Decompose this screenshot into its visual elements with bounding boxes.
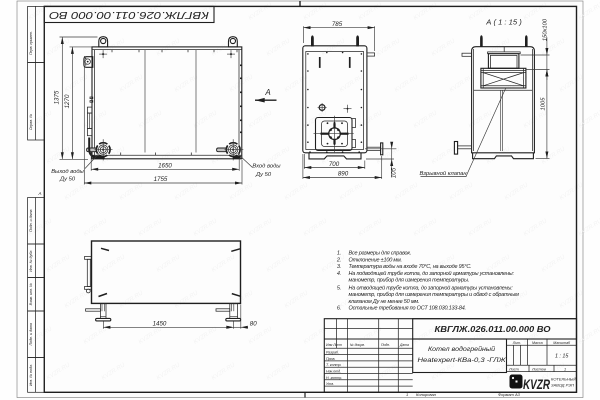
svg-text:1375: 1375	[54, 90, 61, 104]
svg-text:Дата: Дата	[399, 343, 409, 347]
svg-text:КОТЕЛЬНЫЙ: КОТЕЛЬНЫЙ	[551, 377, 576, 382]
svg-text:Листов: Листов	[531, 367, 546, 371]
svg-text:5.: 5.	[337, 285, 341, 291]
svg-text:1650: 1650	[158, 163, 172, 170]
svg-text:Все размеры для справок.: Все размеры для справок.	[349, 251, 412, 257]
svg-text:На подводящей трубе котла, до: На подводящей трубе котла, до запорной а…	[349, 270, 515, 277]
svg-text:Пров.: Пров.	[326, 357, 335, 361]
svg-text:Н. контр.: Н. контр.	[326, 376, 342, 380]
svg-text:№ докум.: № докум.	[350, 343, 365, 347]
svg-text:Изм Лист: Изм Лист	[326, 343, 342, 347]
svg-text:3.: 3.	[337, 264, 341, 270]
svg-text:Выход воды: Выход воды	[51, 169, 84, 175]
svg-text:Heatexpert-КВа-0,3 -ГЛЖ: Heatexpert-КВа-0,3 -ГЛЖ	[418, 357, 507, 364]
svg-text:А: А	[264, 88, 270, 97]
svg-text:Масштаб: Масштаб	[553, 341, 571, 345]
svg-text:КВГЛЖ.026.011.00.000 ВО: КВГЛЖ.026.011.00.000 ВО	[49, 9, 209, 20]
svg-text:манометр, прибор для измерения: манометр, прибор для измерения температу…	[349, 292, 520, 298]
svg-text:Инв. № подл.: Инв. № подл.	[29, 364, 33, 386]
svg-text:1: 1	[564, 367, 566, 371]
svg-text:А: А	[37, 191, 41, 196]
svg-text:Температура воды на входе 70°С: Температура воды на входе 70°С, на выход…	[349, 264, 472, 270]
svg-text:Лит.: Лит.	[512, 341, 521, 345]
svg-text:1 : 15: 1 : 15	[555, 354, 569, 360]
svg-text:КВГЛЖ.026.011.00.000 ВО: КВГЛЖ.026.011.00.000 ВО	[435, 325, 552, 334]
svg-text:Подп. и дата: Подп. и дата	[29, 209, 33, 232]
svg-text:Отклонение ±100 мм.: Отклонение ±100 мм.	[349, 257, 402, 263]
svg-text:Масса: Масса	[532, 341, 543, 345]
svg-text:150х100: 150х100	[542, 18, 548, 41]
svg-text:Формат А3: Формат А3	[498, 392, 521, 397]
svg-text:Перв. примен.: Перв. примен.	[29, 31, 33, 55]
svg-text:80: 80	[250, 321, 257, 328]
svg-text:4.: 4.	[337, 271, 341, 277]
svg-text:700: 700	[329, 161, 340, 168]
svg-text:890: 890	[338, 171, 349, 178]
svg-text:KVZR: KVZR	[523, 376, 551, 392]
svg-text:Разраб.: Разраб.	[326, 351, 339, 355]
svg-text:6.: 6.	[337, 306, 341, 312]
svg-text:Ду 50: Ду 50	[255, 172, 272, 178]
svg-text:785: 785	[332, 21, 343, 28]
svg-text:Копировал: Копировал	[416, 392, 437, 397]
svg-text:клапаном Ду не менее 50 мм.: клапаном Ду не менее 50 мм.	[349, 299, 420, 305]
svg-text:Подп. и дата: Подп. и дата	[29, 323, 33, 346]
svg-text:Взрывной клапан: Взрывной клапан	[419, 170, 467, 177]
svg-text:1270: 1270	[64, 94, 71, 108]
svg-text:Вход воды: Вход воды	[252, 164, 281, 170]
svg-text:1450: 1450	[153, 321, 167, 328]
svg-text:Подп.: Подп.	[381, 343, 390, 347]
svg-text:Т. контр.: Т. контр.	[326, 363, 342, 367]
svg-text:Взам. инв. №: Взам. инв. №	[29, 283, 33, 305]
svg-text:1: 1	[406, 392, 408, 397]
svg-text:1.: 1.	[337, 251, 341, 257]
svg-text:ЗАВОД РЭП: ЗАВОД РЭП	[551, 383, 574, 388]
svg-text:Утв.: Утв.	[326, 382, 334, 386]
svg-text:Ду 50: Ду 50	[59, 177, 76, 183]
svg-text:Инв. № дубл.: Инв. № дубл.	[29, 250, 33, 272]
svg-text:2.: 2.	[336, 257, 341, 263]
svg-text:1005: 1005	[541, 97, 547, 111]
svg-text:Справ. №: Справ. №	[29, 114, 33, 130]
svg-text:Котел водогрейный: Котел водогрейный	[428, 345, 495, 353]
svg-text:А ( 1 : 15 ): А ( 1 : 15 )	[485, 18, 522, 27]
svg-text:На отводящей трубе котла, до з: На отводящей трубе котла, до запорной ар…	[349, 284, 514, 291]
svg-text:Лист: Лист	[508, 367, 519, 371]
svg-text:1755: 1755	[154, 176, 168, 183]
svg-text:105: 105	[390, 167, 397, 178]
svg-text:манометр, прибор для измерения: манометр, прибор для измерения температу…	[349, 278, 470, 284]
svg-text:Нач.отд.: Нач.отд.	[326, 370, 341, 374]
svg-text:Остальные требования по ОСТ 10: Остальные требования по ОСТ 108.030.133-…	[349, 306, 466, 312]
